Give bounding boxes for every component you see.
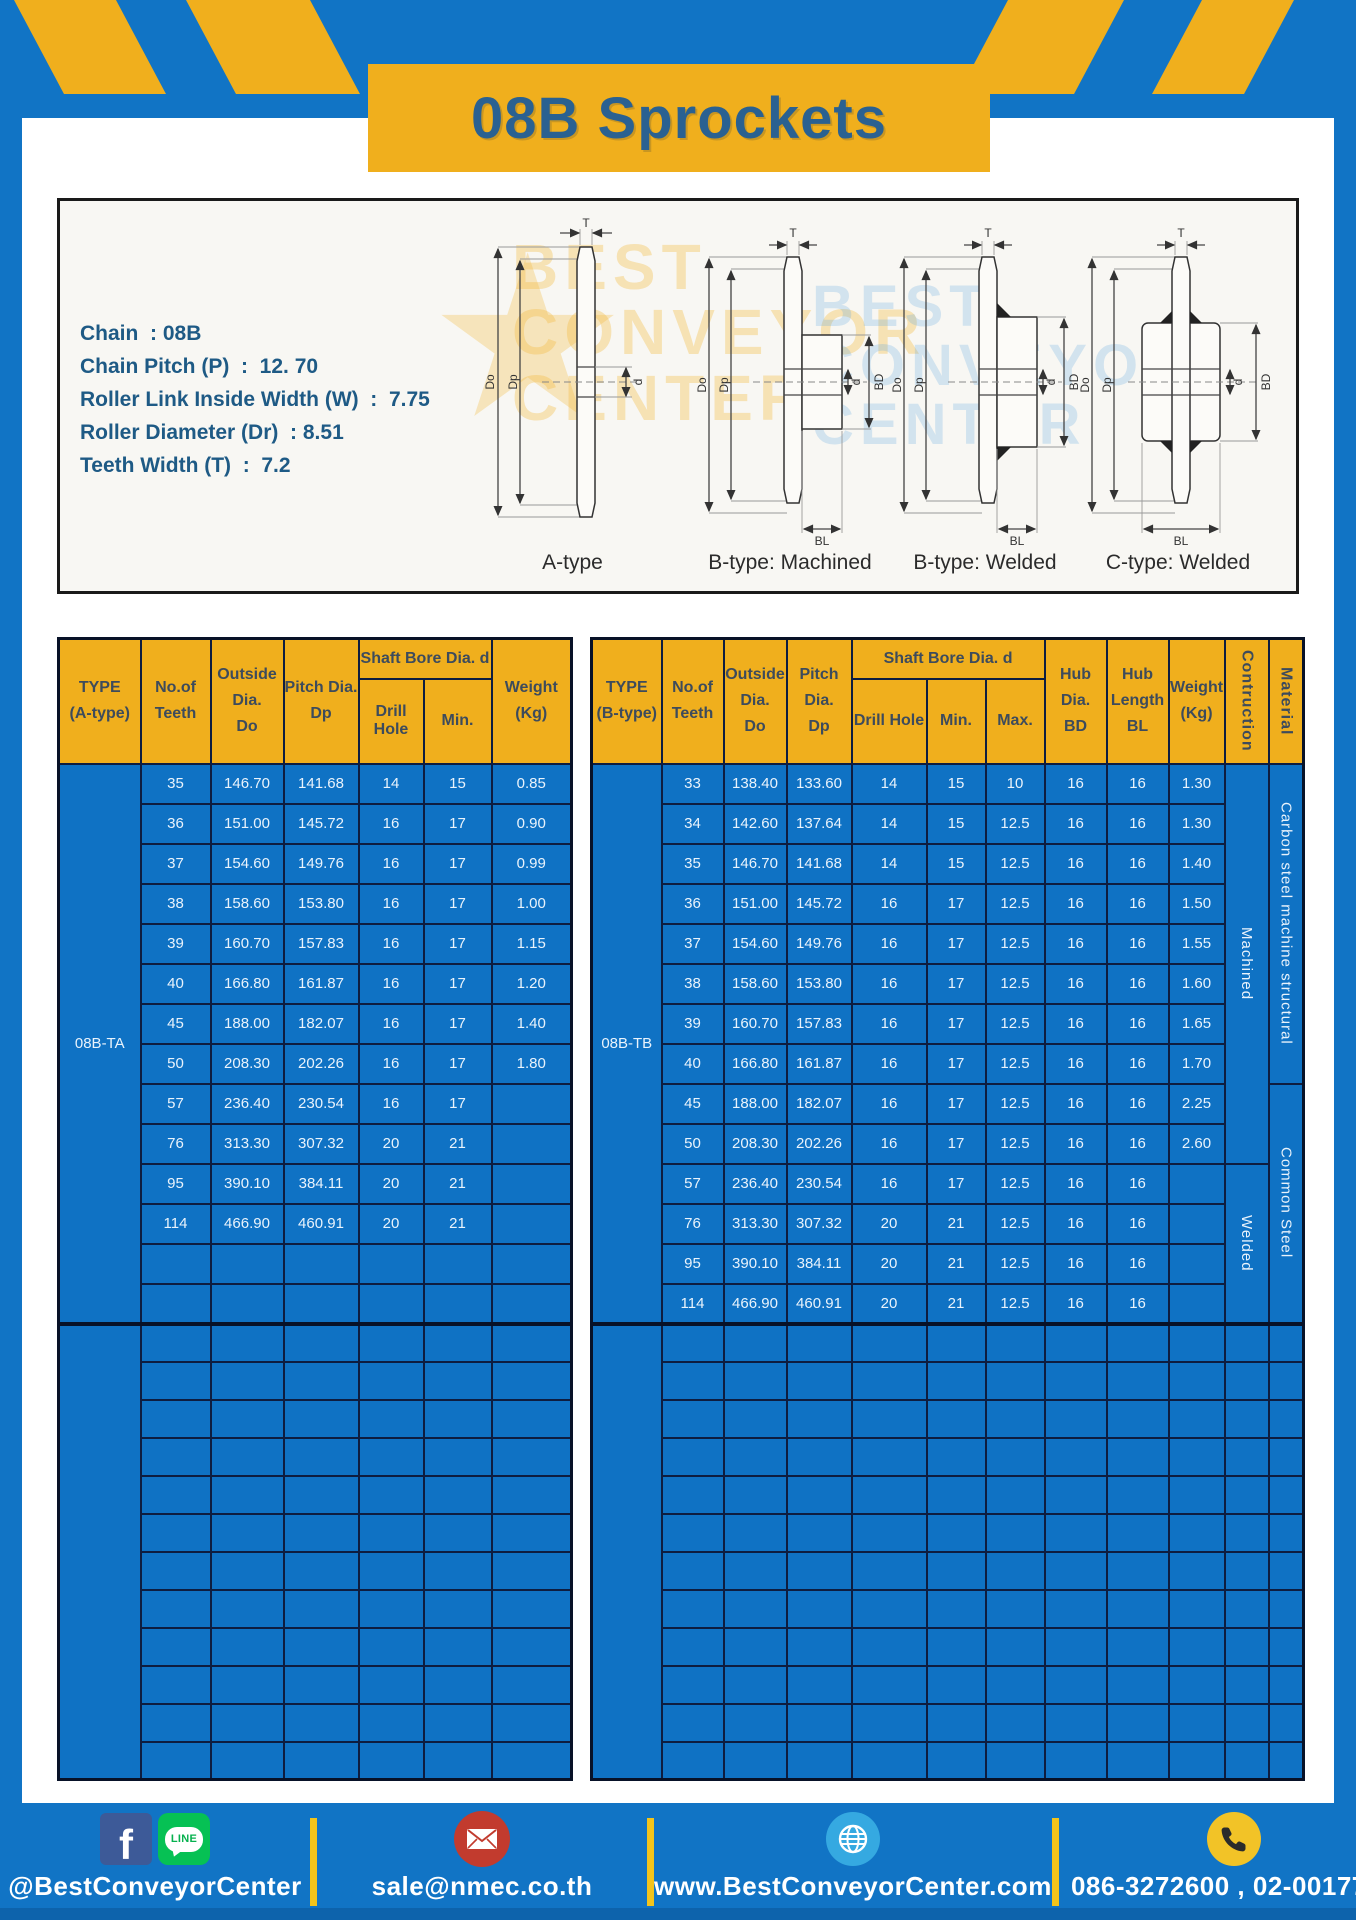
table-cell: 21: [424, 1204, 492, 1244]
table-cell: [787, 1400, 852, 1438]
table-cell: [424, 1628, 492, 1666]
table-cell: [284, 1362, 359, 1400]
table-cell: 236.40: [211, 1084, 284, 1124]
table-cell: [787, 1704, 852, 1742]
table-cell: 14: [852, 804, 927, 844]
table-cell: [927, 1666, 986, 1704]
table-cell: 16: [1045, 924, 1107, 964]
table-cell: [927, 1400, 986, 1438]
svg-text:Do: Do: [890, 377, 904, 393]
table-cell: 17: [424, 884, 492, 924]
table-cell: 16: [1045, 1044, 1107, 1084]
table-cell: [986, 1552, 1045, 1590]
table-cell: [1225, 1324, 1269, 1362]
table-cell: 466.90: [211, 1204, 284, 1244]
table-cell: 95: [141, 1164, 211, 1204]
table-cell: [359, 1362, 424, 1400]
table-cell: 17: [424, 804, 492, 844]
table-cell: [284, 1704, 359, 1742]
page-frame-right: [1334, 118, 1356, 1803]
drawing-caption: C-type: Welded: [1078, 551, 1278, 575]
table-cell: 20: [852, 1244, 927, 1284]
table-cell: [1269, 1400, 1304, 1438]
table-cell: 1.40: [1169, 844, 1225, 884]
a-type-spec-table: TYPE (A-type) No.of Teeth Outside Dia. D…: [57, 637, 573, 1781]
table-cell: [1225, 1514, 1269, 1552]
table-cell: 20: [359, 1164, 424, 1204]
table-cell: [986, 1362, 1045, 1400]
table-cell: 15: [927, 804, 986, 844]
b-type-table-body: 08B-TB33138.40133.6014151016161.30Machin…: [592, 764, 1304, 1780]
table-cell: [492, 1438, 572, 1476]
footer-divider: [310, 1818, 317, 1906]
table-cell: [787, 1362, 852, 1400]
table-cell: 16: [359, 964, 424, 1004]
table-cell: 182.07: [787, 1084, 852, 1124]
table-cell: [662, 1476, 724, 1514]
table-cell: [1169, 1628, 1225, 1666]
table-cell: 1.15: [492, 924, 572, 964]
footer-phone-group: 086-3272600 , 02-0017766: [1059, 1803, 1356, 1920]
table-cell: [284, 1284, 359, 1324]
table-cell: [284, 1552, 359, 1590]
table-cell: [1169, 1438, 1225, 1476]
table-cell: 1.50: [1169, 884, 1225, 924]
table-cell: 50: [662, 1124, 724, 1164]
table-cell: 16: [1045, 1004, 1107, 1044]
table-cell: 16: [1045, 884, 1107, 924]
svg-text:d: d: [849, 379, 863, 386]
table-cell: [852, 1400, 927, 1438]
spec-line: Teeth Width (T) : 7.2: [80, 449, 430, 482]
table-cell: [1169, 1400, 1225, 1438]
table-cell: 17: [424, 1044, 492, 1084]
table-cell: [492, 1204, 572, 1244]
table-cell: [492, 1324, 572, 1362]
table-cell: 16: [852, 1124, 927, 1164]
table-cell: 20: [359, 1124, 424, 1164]
table-cell: 16: [359, 1044, 424, 1084]
svg-text:Dp: Dp: [506, 374, 520, 390]
table-cell: [986, 1742, 1045, 1780]
table-cell: 12.5: [986, 844, 1045, 884]
table-cell: 17: [424, 964, 492, 1004]
table-cell: 313.30: [211, 1124, 284, 1164]
table-cell: 16: [852, 884, 927, 924]
table-cell: 16: [1107, 804, 1169, 844]
table-cell: [927, 1628, 986, 1666]
table-cell: [1169, 1244, 1225, 1284]
table-cell: [787, 1438, 852, 1476]
svg-text:d: d: [1044, 379, 1058, 386]
table-cell: 1.80: [492, 1044, 572, 1084]
table-cell: [927, 1476, 986, 1514]
footer-bottom-strip: [0, 1908, 1356, 1920]
table-cell: [1269, 1476, 1304, 1514]
table-cell: 16: [1045, 1124, 1107, 1164]
svg-text:Dp: Dp: [912, 377, 926, 393]
table-cell: 20: [852, 1204, 927, 1244]
table-cell: 34: [662, 804, 724, 844]
stripe-decoration: [14, 0, 166, 94]
table-cell: [927, 1742, 986, 1780]
table-cell: [284, 1400, 359, 1438]
table-cell: [787, 1552, 852, 1590]
table-cell: [492, 1244, 572, 1284]
table-cell: [1045, 1438, 1107, 1476]
table-cell: [284, 1514, 359, 1552]
table-cell: [852, 1666, 927, 1704]
table-cell: 158.60: [724, 964, 787, 1004]
table-cell: 16: [1107, 1244, 1169, 1284]
table-cell: 390.10: [211, 1164, 284, 1204]
table-cell: [1107, 1476, 1169, 1514]
table-cell: [424, 1324, 492, 1362]
table-cell: [1169, 1362, 1225, 1400]
table-cell: [424, 1704, 492, 1742]
table-cell: [492, 1742, 572, 1780]
table-cell: [424, 1666, 492, 1704]
table-cell: 154.60: [211, 844, 284, 884]
construction-group-cell: Welded: [1225, 1164, 1269, 1324]
table-cell: 45: [662, 1084, 724, 1124]
table-cell: 21: [927, 1284, 986, 1324]
table-cell: [424, 1514, 492, 1552]
table-cell: [724, 1590, 787, 1628]
table-cell: [211, 1590, 284, 1628]
table-cell: 17: [927, 924, 986, 964]
table-cell: [787, 1590, 852, 1628]
table-cell: 17: [424, 1084, 492, 1124]
table-cell: 76: [662, 1204, 724, 1244]
table-cell: [284, 1628, 359, 1666]
table-cell: 20: [359, 1204, 424, 1244]
table-cell: 45: [141, 1004, 211, 1044]
table-cell: [1269, 1324, 1304, 1362]
table-cell: 0.99: [492, 844, 572, 884]
column-header-pitch-dia: Pitch Dia. Dp: [284, 639, 359, 764]
table-cell: 12.5: [986, 1204, 1045, 1244]
table-cell: 14: [852, 844, 927, 884]
spec-line: Roller Link Inside Width (W) : 7.75: [80, 383, 430, 416]
column-header-shaft-bore: Shaft Bore Dia. d: [852, 639, 1045, 679]
table-cell: [492, 1284, 572, 1324]
table-cell: [492, 1704, 572, 1742]
table-cell: [359, 1400, 424, 1438]
table-cell: 12.5: [986, 804, 1045, 844]
table-cell: [211, 1628, 284, 1666]
table-cell: 12.5: [986, 1084, 1045, 1124]
table-cell: 141.68: [787, 844, 852, 884]
svg-text:Do: Do: [483, 374, 497, 390]
table-cell: [927, 1324, 986, 1362]
table-cell: [852, 1438, 927, 1476]
table-cell: [927, 1514, 986, 1552]
table-cell: 16: [1045, 1244, 1107, 1284]
table-cell: 16: [852, 1004, 927, 1044]
table-cell: [141, 1244, 211, 1284]
table-cell: [986, 1628, 1045, 1666]
table-cell: [492, 1590, 572, 1628]
table-cell: 35: [141, 764, 211, 804]
table-cell: [1045, 1514, 1107, 1552]
table-cell: [492, 1124, 572, 1164]
table-cell: [359, 1666, 424, 1704]
table-cell: 153.80: [284, 884, 359, 924]
table-cell: 151.00: [211, 804, 284, 844]
table-cell: 36: [662, 884, 724, 924]
table-cell: 1.40: [492, 1004, 572, 1044]
table-cell: 1.70: [1169, 1044, 1225, 1084]
type-label-cell: [592, 1324, 662, 1780]
table-cell: 16: [1045, 1204, 1107, 1244]
table-cell: [359, 1628, 424, 1666]
table-cell: [852, 1590, 927, 1628]
svg-text:T: T: [1177, 226, 1185, 240]
table-cell: [986, 1400, 1045, 1438]
footer-divider: [647, 1818, 654, 1906]
table-cell: 37: [141, 844, 211, 884]
table-cell: 17: [927, 884, 986, 924]
table-cell: [724, 1362, 787, 1400]
table-cell: [724, 1742, 787, 1780]
table-cell: [724, 1552, 787, 1590]
svg-text:Do: Do: [695, 377, 709, 393]
type-label-cell: 08B-TA: [59, 764, 141, 1324]
table-cell: [1269, 1362, 1304, 1400]
table-cell: 145.72: [787, 884, 852, 924]
table-cell: 21: [424, 1124, 492, 1164]
footer-social-handle: @BestConveyorCenter: [8, 1871, 301, 1902]
table-cell: 12.5: [986, 964, 1045, 1004]
table-cell: 57: [662, 1164, 724, 1204]
column-header-drill-hole: Drill Hole: [852, 679, 927, 764]
table-cell: 16: [1107, 884, 1169, 924]
table-cell: [787, 1628, 852, 1666]
column-header-shaft-bore: Shaft Bore Dia. d: [359, 639, 492, 679]
table-cell: [1225, 1742, 1269, 1780]
spec-drawing-box: ★ BEST CONVEYOR CENTER BEST CONVEYOR CEN…: [57, 198, 1299, 594]
table-cell: [852, 1324, 927, 1362]
table-cell: 16: [359, 884, 424, 924]
column-header-min: Min.: [424, 679, 492, 764]
table-cell: [1169, 1284, 1225, 1324]
table-cell: 0.90: [492, 804, 572, 844]
table-cell: [492, 1400, 572, 1438]
page-title: 08B Sprockets: [471, 85, 887, 152]
table-cell: 50: [141, 1044, 211, 1084]
type-label-cell: [59, 1324, 141, 1780]
table-cell: [662, 1742, 724, 1780]
table-cell: 17: [927, 1124, 986, 1164]
table-cell: [724, 1666, 787, 1704]
table-cell: [1045, 1704, 1107, 1742]
table-cell: [492, 1164, 572, 1204]
table-cell: 202.26: [284, 1044, 359, 1084]
table-cell: 16: [1107, 1044, 1169, 1084]
table-cell: 1.55: [1169, 924, 1225, 964]
svg-text:BL: BL: [815, 534, 830, 547]
type-label-cell: 08B-TB: [592, 764, 662, 1324]
table-cell: 16: [852, 1044, 927, 1084]
table-cell: [1169, 1324, 1225, 1362]
table-cell: [211, 1244, 284, 1284]
table-cell: [141, 1438, 211, 1476]
table-cell: 149.76: [284, 844, 359, 884]
table-cell: [1169, 1704, 1225, 1742]
table-cell: [1107, 1438, 1169, 1476]
svg-text:Dp: Dp: [1100, 377, 1114, 393]
spec-line: Chain Pitch (P) : 12. 70: [80, 350, 430, 383]
stripe-decoration: [1152, 0, 1294, 94]
title-banner: 08B Sprockets: [368, 64, 990, 172]
table-cell: 40: [141, 964, 211, 1004]
table-cell: [1225, 1628, 1269, 1666]
column-header-max: Max.: [986, 679, 1045, 764]
table-cell: [1045, 1476, 1107, 1514]
table-cell: 12.5: [986, 1124, 1045, 1164]
footer-phone-numbers: 086-3272600 , 02-0017766: [1071, 1871, 1356, 1902]
table-cell: 142.60: [724, 804, 787, 844]
table-cell: 17: [927, 1084, 986, 1124]
table-cell: [211, 1400, 284, 1438]
table-cell: [1269, 1590, 1304, 1628]
table-cell: [986, 1704, 1045, 1742]
table-cell: 16: [359, 804, 424, 844]
table-cell: [424, 1284, 492, 1324]
table-cell: [1169, 1204, 1225, 1244]
table-cell: 161.87: [787, 1044, 852, 1084]
table-cell: 16: [1045, 764, 1107, 804]
table-cell: [141, 1704, 211, 1742]
table-cell: 460.91: [787, 1284, 852, 1324]
page: 08B Sprockets ★ BEST CONVEYOR CENTER BES…: [0, 0, 1356, 1920]
table-cell: [359, 1438, 424, 1476]
table-cell: [424, 1400, 492, 1438]
table-cell: [986, 1438, 1045, 1476]
table-cell: [724, 1400, 787, 1438]
table-cell: [662, 1704, 724, 1742]
table-cell: 12.5: [986, 1164, 1045, 1204]
material-group-cell: Carbon steel machine structural: [1269, 764, 1304, 1084]
table-cell: [211, 1704, 284, 1742]
table-cell: [211, 1438, 284, 1476]
table-cell: [1169, 1476, 1225, 1514]
table-cell: [284, 1666, 359, 1704]
b-type-spec-table: TYPE (B-type) No.of Teeth Outside Dia. D…: [590, 637, 1305, 1781]
table-cell: 16: [1107, 1084, 1169, 1124]
table-cell: [724, 1324, 787, 1362]
table-cell: 17: [424, 844, 492, 884]
column-header-material: Material: [1269, 639, 1304, 764]
table-cell: [986, 1666, 1045, 1704]
table-cell: 39: [141, 924, 211, 964]
table-cell: 17: [927, 1004, 986, 1044]
table-cell: [1225, 1552, 1269, 1590]
b-type-welded-drawing-icon: Do Dp d BD T BL: [890, 217, 1080, 547]
table-cell: 384.11: [284, 1164, 359, 1204]
table-cell: [662, 1438, 724, 1476]
table-cell: 390.10: [724, 1244, 787, 1284]
table-cell: 33: [662, 764, 724, 804]
table-cell: 166.80: [724, 1044, 787, 1084]
table-cell: [724, 1628, 787, 1666]
table-cell: [492, 1476, 572, 1514]
drawing-caption: A-type: [480, 551, 665, 575]
table-cell: 12.5: [986, 1244, 1045, 1284]
table-cell: 307.32: [284, 1124, 359, 1164]
table-cell: [852, 1362, 927, 1400]
table-cell: 1.60: [1169, 964, 1225, 1004]
table-cell: 15: [927, 844, 986, 884]
phone-icon: [1207, 1812, 1261, 1866]
table-cell: [1225, 1400, 1269, 1438]
table-cell: 76: [141, 1124, 211, 1164]
table-cell: [141, 1590, 211, 1628]
table-cell: 21: [424, 1164, 492, 1204]
column-header-type: TYPE (A-type): [59, 639, 141, 764]
table-cell: [141, 1324, 211, 1362]
table-cell: [492, 1666, 572, 1704]
column-header-weight: Weight (Kg): [1169, 639, 1225, 764]
table-cell: 149.76: [787, 924, 852, 964]
table-cell: 38: [662, 964, 724, 1004]
table-cell: 154.60: [724, 924, 787, 964]
table-cell: [1045, 1400, 1107, 1438]
table-cell: [787, 1324, 852, 1362]
svg-text:BD: BD: [872, 373, 885, 390]
table-cell: 313.30: [724, 1204, 787, 1244]
table-cell: [662, 1666, 724, 1704]
table-cell: [1045, 1324, 1107, 1362]
table-cell: [927, 1590, 986, 1628]
table-cell: [1169, 1164, 1225, 1204]
table-cell: 208.30: [724, 1124, 787, 1164]
column-header-hub-length: Hub Length BL: [1107, 639, 1169, 764]
footer-email: sale@nmec.co.th: [372, 1871, 593, 1902]
table-cell: 12.5: [986, 884, 1045, 924]
table-cell: 38: [141, 884, 211, 924]
table-cell: [1107, 1742, 1169, 1780]
table-cell: [284, 1590, 359, 1628]
footer-divider: [1052, 1818, 1059, 1906]
table-cell: [1045, 1590, 1107, 1628]
table-cell: 16: [852, 964, 927, 1004]
table-cell: [1107, 1324, 1169, 1362]
table-cell: [1169, 1590, 1225, 1628]
table-cell: 16: [1107, 1164, 1169, 1204]
column-header-outside-dia: Outside Dia. Do: [211, 639, 284, 764]
table-cell: 15: [424, 764, 492, 804]
drawing-caption: B-type: Machined: [695, 551, 885, 575]
column-header-teeth: No.of Teeth: [141, 639, 211, 764]
table-cell: 146.70: [724, 844, 787, 884]
table-cell: [1169, 1742, 1225, 1780]
material-group-cell: Common Steel: [1269, 1084, 1304, 1324]
table-cell: [852, 1552, 927, 1590]
table-cell: 157.83: [284, 924, 359, 964]
table-cell: [986, 1590, 1045, 1628]
table-cell: 16: [1045, 1164, 1107, 1204]
table-cell: 137.64: [787, 804, 852, 844]
table-cell: 57: [141, 1084, 211, 1124]
table-cell: [1269, 1552, 1304, 1590]
table-cell: 21: [927, 1244, 986, 1284]
table-cell: [1269, 1514, 1304, 1552]
table-cell: [492, 1628, 572, 1666]
table-cell: 16: [852, 1084, 927, 1124]
c-type-welded-drawing-icon: Do Dp d BD T BL: [1078, 217, 1278, 547]
